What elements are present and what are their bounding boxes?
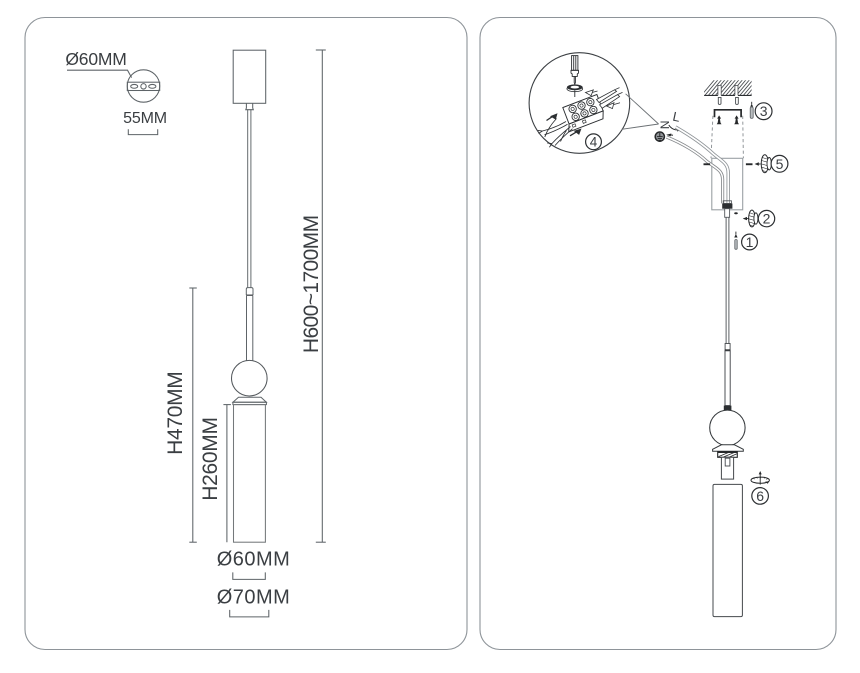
svg-text:6: 6 xyxy=(756,488,764,504)
svg-text:Ø60MM: Ø60MM xyxy=(65,49,126,69)
svg-text:55MM: 55MM xyxy=(123,110,167,127)
svg-text:2: 2 xyxy=(763,211,771,227)
svg-text:4: 4 xyxy=(590,135,598,150)
svg-text:Ø70MM: Ø70MM xyxy=(217,587,291,609)
svg-text:Ø60MM: Ø60MM xyxy=(217,549,291,571)
svg-text:3: 3 xyxy=(760,103,768,119)
svg-text:H600~1700MM: H600~1700MM xyxy=(300,216,323,354)
svg-text:5: 5 xyxy=(776,156,784,172)
svg-text:H470MM: H470MM xyxy=(164,372,187,455)
svg-text:H260MM: H260MM xyxy=(199,417,222,500)
svg-text:1: 1 xyxy=(746,234,754,250)
